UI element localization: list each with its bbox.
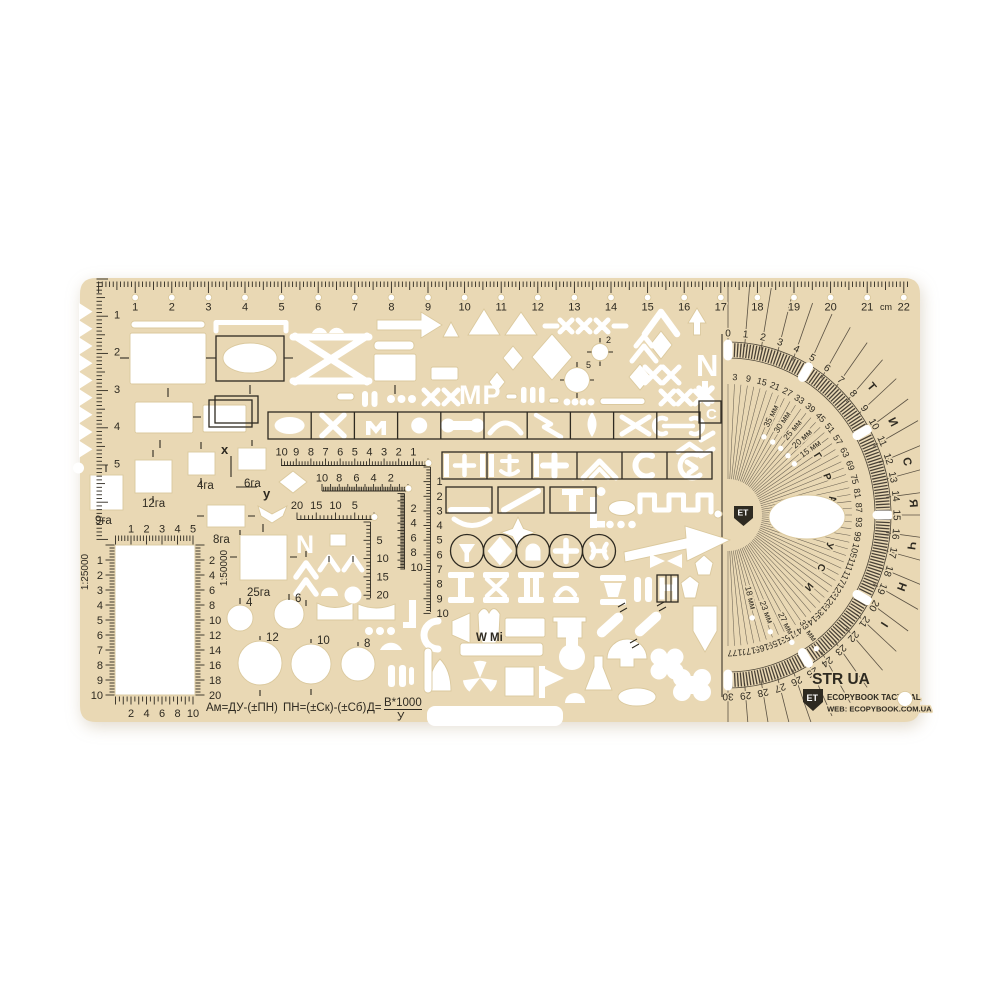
square-cutout [505, 667, 534, 696]
square-25ha-cutout [240, 535, 287, 580]
alignment-hole [205, 294, 212, 301]
grid-rectangle-cutout [115, 545, 195, 695]
dot-cutout [628, 521, 636, 529]
formula-correction: ПН=(±Ск)-(±Сб) [283, 702, 366, 714]
rectangle-cutout [431, 367, 458, 380]
coord-scale-number: 4 [366, 447, 372, 459]
alignment-hole [608, 294, 615, 301]
alignment-hole [681, 294, 688, 301]
top-ruler-number: 11 [495, 302, 506, 314]
top-ruler-number: 14 [605, 302, 617, 314]
circle-10-cutout [291, 644, 331, 684]
knee-cutout [590, 521, 605, 528]
alignment-hole [827, 294, 834, 301]
dot-cutout [365, 627, 373, 635]
grid-right-number: 4 [209, 570, 215, 582]
top-ruler-number: 9 [425, 302, 431, 314]
coord-scale-number: 10 [275, 447, 287, 459]
pin-hole [749, 615, 754, 620]
alignment-hole [388, 294, 395, 301]
left-ruler-number: 3 [114, 384, 120, 396]
coord-scale-number: 10 [411, 562, 423, 574]
coord-scale-number: 20 [377, 590, 389, 602]
coord-scale-number: 5 [437, 535, 443, 547]
circle-12-cutout [238, 641, 282, 685]
dot-cutout [387, 627, 395, 635]
tall-bar-cutout [424, 648, 432, 693]
alignment-hole [644, 294, 651, 301]
coord-scale-number: 15 [310, 500, 322, 512]
bone-symbol-cutout [441, 419, 455, 433]
coord-scale-number: 8 [308, 447, 314, 459]
coord-scale-number: 6 [437, 549, 443, 561]
degree-scale-number: 93 [854, 517, 865, 528]
coord-scale-number: 10 [437, 608, 449, 620]
target-circle-cutout [592, 344, 609, 361]
dash-cutout [337, 393, 354, 400]
coord-scale-number: 6 [411, 532, 417, 544]
et-logo-letters: ET [807, 693, 819, 703]
coord-scale-number: 4 [371, 473, 377, 485]
edge-notch [73, 463, 84, 474]
left-ruler-number: 2 [114, 347, 120, 359]
center-hole [714, 510, 722, 518]
alignment-hole [718, 294, 725, 301]
mil-scale-number: 29 [739, 689, 752, 701]
long-rectangle-cutout [460, 643, 543, 656]
dot-cutout [588, 399, 595, 406]
hang-hole [898, 692, 913, 707]
alignment-hole [278, 294, 285, 301]
grid-top-number: 5 [190, 524, 196, 536]
coord-scale-number: 9 [437, 593, 443, 605]
degree-scale-number: 87 [854, 503, 865, 514]
alignment-hole [571, 294, 578, 301]
coord-scale-number: 3 [437, 505, 443, 517]
alignment-hole [901, 294, 908, 301]
map-scale-label: 1:50000 [219, 549, 230, 586]
top-ruler-number: 22 [898, 302, 910, 314]
coord-scale-number: 6 [353, 473, 359, 485]
coord-scale-number: 5 [352, 447, 358, 459]
coord-scale-number: 4 [437, 520, 443, 532]
grid-top-number: 2 [143, 524, 149, 536]
formula-azimuth: Ам=ДУ-(±ПН) [206, 702, 278, 714]
arch-glyph-cutout [526, 544, 541, 561]
dot-cutout [376, 627, 384, 635]
top-ruler-number: 6 [315, 302, 321, 314]
pin-hole [778, 446, 783, 451]
bar-cutout [388, 665, 395, 687]
coord-scale-number: 9 [293, 447, 299, 459]
formula-distance-denominator: У [397, 712, 405, 724]
coord-scale-number: 2 [396, 447, 402, 459]
bone-symbol-cutout [470, 419, 484, 433]
mr-letters-cutout: МР [459, 380, 502, 410]
degree-scale-number: 81 [852, 488, 863, 499]
pin-hole [789, 640, 794, 645]
grid-top-number: 1 [128, 524, 134, 536]
area-label-4ha: 4га [197, 480, 214, 492]
top-ruler-number: 1 [132, 302, 138, 314]
dot-cutout [597, 487, 606, 496]
bar-cutout [399, 665, 406, 687]
grid-left-number: 5 [97, 615, 103, 627]
area-label-6ha: 6га [244, 478, 261, 490]
grid-right-number: 8 [209, 600, 215, 612]
pin-hole [761, 434, 766, 439]
degree-scale-number: 3 [732, 372, 738, 382]
dot-cutout [387, 395, 395, 403]
oval-cutout [609, 501, 636, 516]
oval-cutout [223, 343, 277, 373]
pin-hole [768, 629, 773, 634]
coord-scale-number: 1 [410, 447, 416, 459]
coord-scale-number: 2 [437, 491, 443, 503]
top-ruler-number: 20 [824, 302, 836, 314]
dot-cutout [606, 521, 614, 529]
circle-label-6: 6 [295, 593, 301, 605]
grid-left-number: 9 [97, 675, 103, 687]
degree-scale-number: 99 [852, 531, 863, 542]
coord-scale-number: 8 [336, 473, 342, 485]
grid-left-number: 8 [97, 660, 103, 672]
stencil-photo: 0123456789101112131415161718192021222324… [0, 0, 1000, 1000]
mil-scale-number: 16 [889, 528, 901, 541]
top-ruler-number: 3 [205, 302, 211, 314]
target-label-5: 5 [586, 360, 591, 370]
bottom-notch [427, 706, 563, 726]
bar-cutout [534, 454, 539, 477]
bar-cutout [634, 577, 641, 602]
coord-scale-number: 4 [411, 518, 417, 530]
bar-cutout [480, 454, 485, 477]
et-logo-stencil-letters: ET [738, 508, 750, 518]
grid-left-number: 10 [91, 690, 103, 702]
grid-right-number: 20 [209, 690, 221, 702]
top-ruler-number: 4 [242, 302, 248, 314]
pin-hole [785, 453, 790, 458]
top-ruler-number: 21 [861, 302, 873, 314]
grid-left-number: 3 [97, 585, 103, 597]
top-ruler-number: 15 [641, 302, 653, 314]
grid-right-number: 16 [209, 660, 221, 672]
left-ruler-number: 4 [114, 421, 120, 433]
coord-scale-number: 7 [322, 447, 328, 459]
top-ruler-number: 13 [568, 302, 580, 314]
alignment-hole [315, 294, 322, 301]
grid-top-number: 4 [174, 524, 180, 536]
grid-bottom-number: 6 [159, 708, 165, 720]
ellipse-cutout [618, 688, 656, 706]
axis-label-y: y [263, 486, 271, 501]
top-ruler-number: 16 [678, 302, 690, 314]
coord-scale-number: 10 [377, 553, 389, 565]
grid-bottom-number: 8 [174, 708, 180, 720]
bar-cutout [645, 577, 652, 602]
coord-scale-number: 7 [437, 564, 443, 576]
rectangle-cutout [374, 354, 416, 381]
dot-cutout [580, 399, 587, 406]
t-flag-cutout [562, 489, 583, 495]
coord-scale-number: 15 [377, 571, 389, 583]
circle-symbol-cutout [411, 418, 427, 434]
band-slot-cutout [724, 670, 733, 691]
bar-cutout [521, 387, 527, 403]
band-slot-cutout [873, 511, 894, 520]
scale-origin-hole [371, 514, 378, 521]
flag-pole-cutout [539, 666, 545, 698]
coord-scale-number: 3 [381, 447, 387, 459]
dot-cutout [408, 395, 416, 403]
circle-label-4: 4 [246, 597, 253, 609]
bar-cutout [362, 391, 368, 407]
mil-scale-number: 0 [725, 329, 731, 340]
top-ruler-number: 10 [458, 302, 470, 314]
top-ruler-unit: cm [880, 302, 892, 312]
grid-right-number: 10 [209, 615, 221, 627]
dash-cutout [549, 398, 559, 403]
area-label-12ha: 12га [142, 498, 166, 510]
mil-scale-number: 30 [722, 691, 734, 702]
model-name: STR UA [812, 671, 870, 688]
alignment-hole [791, 294, 798, 301]
coord-scale-number: 8 [411, 547, 417, 559]
dash-cutout [506, 394, 517, 399]
alignment-hole [242, 294, 249, 301]
top-ruler-number: 5 [279, 302, 285, 314]
letter-n-cutout: N [696, 348, 718, 383]
square-4ha-cutout [188, 452, 215, 475]
top-ruler-number: 12 [532, 302, 544, 314]
mil-word-letter: Я [906, 499, 918, 508]
grid-right-number: 6 [209, 585, 215, 597]
top-ruler-number: 18 [751, 302, 763, 314]
alignment-hole [754, 294, 761, 301]
coord-scale-number: 10 [316, 473, 328, 485]
coord-scale-number: 2 [411, 503, 417, 515]
dot-cutout [617, 521, 625, 529]
grid-bottom-number: 2 [128, 708, 134, 720]
scale-origin-hole [405, 485, 412, 492]
formula-distance-numerator: В*1000 [384, 697, 422, 709]
pin-hole [814, 646, 819, 651]
grid-left-number: 7 [97, 645, 103, 657]
grid-left-number: 4 [97, 600, 103, 612]
pin-hole [792, 461, 797, 466]
alignment-hole [864, 294, 871, 301]
grid-left-number: 2 [97, 570, 103, 582]
pin-hole [770, 439, 775, 444]
jug-cutout [566, 637, 578, 646]
coord-scale-number: 10 [329, 500, 341, 512]
striped-box-h-cutout [660, 585, 678, 592]
coord-scale-number: 8 [437, 579, 443, 591]
top-ruler-number: 2 [169, 302, 175, 314]
coord-scale-number: 1 [437, 476, 443, 488]
oval-symbol-cutout [275, 417, 305, 434]
grid-right-number: 18 [209, 675, 221, 687]
alignment-hole [425, 294, 432, 301]
circle-label-10: 10 [317, 635, 330, 647]
alignment-hole [169, 294, 176, 301]
grid-left-number: 6 [97, 630, 103, 642]
map-scale-label: 1:25000 [80, 553, 91, 590]
rectangle-cutout [135, 402, 193, 433]
grid-right-number: 14 [209, 645, 221, 657]
letter-c-cutout: С [706, 406, 717, 423]
grid-right-number: 2 [209, 555, 215, 567]
grid-top-number: 3 [159, 524, 165, 536]
coord-scale-number: 6 [337, 447, 343, 459]
coord-scale-number: 5 [352, 500, 358, 512]
circle-label-8: 8 [364, 638, 370, 650]
top-ruler-number: 17 [715, 302, 727, 314]
bar-cutout [489, 454, 494, 477]
area-label-9ha: 9га [95, 515, 112, 527]
rectangle-cutout [330, 534, 346, 546]
target-circle-cutout [565, 368, 590, 393]
dot-cutout [398, 395, 406, 403]
alignment-hole [498, 294, 505, 301]
bar-cutout [539, 387, 545, 403]
rect-8ha-cutout [207, 505, 245, 527]
alignment-hole [132, 294, 139, 301]
band-slot-cutout [724, 340, 733, 361]
bar-cutout [374, 341, 414, 350]
brand-web: WEB: ECOPYBOOK.COM.UA [827, 705, 932, 714]
degree-scale-number: 177 [727, 647, 743, 658]
photo-stage: 0123456789101112131415161718192021222324… [0, 0, 1000, 1000]
square-6ha-cutout [238, 448, 266, 470]
top-ruler-number: 19 [788, 302, 800, 314]
top-ruler-number: 7 [352, 302, 358, 314]
rectangle-cutout [130, 333, 206, 384]
axis-label-x: x [221, 442, 229, 457]
bar-cutout [448, 507, 490, 513]
rectangle-cutout [505, 618, 545, 637]
long-dash-cutout [600, 398, 645, 405]
w-mi-label: W Mi [476, 632, 503, 644]
circle-8-cutout [341, 647, 375, 681]
jug-cutout [559, 644, 585, 670]
left-ruler-number: 5 [114, 458, 120, 470]
coord-scale-number: 5 [377, 535, 383, 547]
alignment-hole [535, 294, 542, 301]
bar-cutout [409, 667, 414, 685]
target-label-2: 2 [606, 335, 611, 345]
top-ruler-number: 8 [388, 302, 394, 314]
mil-scale-number: 15 [891, 509, 902, 521]
bar-cutout [372, 391, 378, 407]
bar-cutout [444, 454, 449, 477]
circle-label-12: 12 [266, 632, 279, 644]
square-9ha-cutout [90, 475, 123, 510]
bar-cutout [530, 387, 536, 403]
mil-scale-number: 14 [889, 490, 901, 503]
alignment-hole [352, 294, 359, 301]
pot-cutout [553, 617, 586, 638]
dot-cutout [572, 399, 579, 406]
dot-cutout [564, 399, 571, 406]
left-ruler-number: 1 [114, 310, 120, 322]
coord-scale-number: 20 [291, 500, 303, 512]
area-label-8ha: 8га [213, 534, 230, 546]
bar-cutout [131, 321, 205, 328]
scale-origin-hole [425, 460, 432, 467]
grid-left-number: 1 [97, 555, 103, 567]
coord-scale-number: 2 [388, 473, 394, 485]
l-bar-cutout [403, 622, 416, 628]
formula-distance-prefix: Д= [367, 702, 382, 714]
grid-bottom-number: 10 [187, 708, 199, 720]
ellipse-cutout [769, 495, 845, 539]
grid-right-number: 12 [209, 630, 221, 642]
alignment-hole [461, 294, 468, 301]
arrow-circle-cutout [345, 587, 362, 604]
grid-bottom-number: 4 [143, 708, 149, 720]
square-12ha-cutout [135, 460, 172, 493]
letter-n-cutout: N [296, 531, 314, 559]
